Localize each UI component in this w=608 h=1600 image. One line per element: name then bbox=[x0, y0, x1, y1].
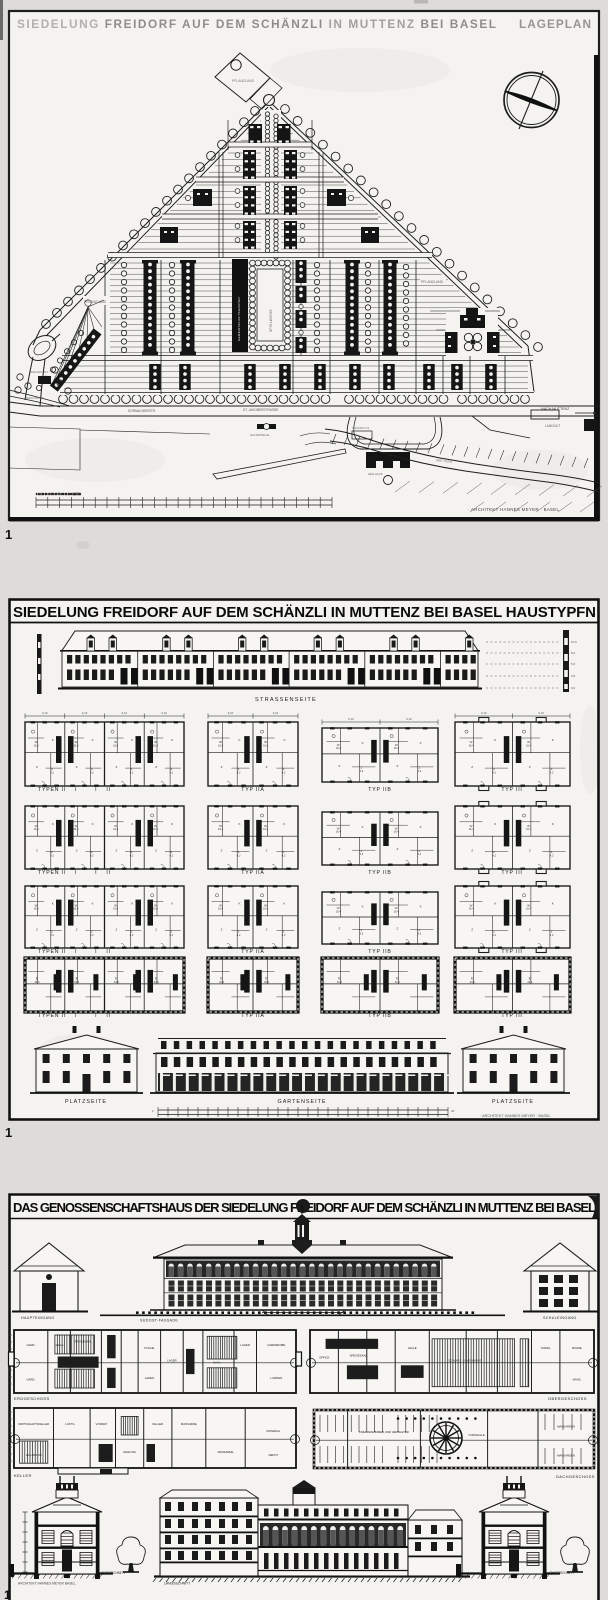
svg-text:K: K bbox=[283, 902, 285, 906]
svg-text:Z: Z bbox=[471, 848, 473, 852]
svg-text:K: K bbox=[362, 741, 364, 745]
svg-text:TYP IIB: TYP IIB bbox=[368, 1013, 391, 1019]
svg-text:Z: Z bbox=[155, 848, 157, 852]
svg-text:0 10 20 30: 0 10 20 30 40 50 60 70 80 90 100 METER bbox=[36, 493, 81, 496]
svg-text:43,6: 43,6 bbox=[395, 980, 401, 984]
svg-text:ARCHITEKT HANNES MEYER BASE: ARCHITEKT HANNES MEYER BASEL. bbox=[18, 1582, 76, 1586]
svg-text:6,10: 6,10 bbox=[481, 711, 487, 715]
svg-text:GARD.: GARD. bbox=[26, 1343, 35, 1347]
svg-text:0,0: 0,0 bbox=[571, 686, 576, 690]
svg-text:STRASSENSEITE: STRASSENSEITE bbox=[255, 697, 317, 703]
svg-text:Z: Z bbox=[266, 765, 268, 769]
svg-text:16,4: 16,4 bbox=[73, 827, 79, 831]
svg-text:Z: Z bbox=[266, 848, 268, 852]
svg-text:K: K bbox=[131, 902, 133, 906]
svg-text:K: K bbox=[420, 741, 422, 745]
svg-text:4,2: 4,2 bbox=[550, 854, 554, 858]
svg-text:16,4: 16,4 bbox=[394, 909, 400, 913]
svg-text:NACH BASEL: NACH BASEL bbox=[26, 396, 45, 400]
svg-text:16,4: 16,4 bbox=[218, 827, 224, 831]
svg-text:Z: Z bbox=[76, 928, 78, 932]
svg-text:4,2: 4,2 bbox=[418, 852, 422, 856]
svg-text:Z: Z bbox=[396, 764, 398, 768]
svg-text:TYP IIB: TYP IIB bbox=[368, 787, 391, 793]
svg-text:Z: Z bbox=[238, 930, 240, 934]
svg-text:MANSARDE: MANSARDE bbox=[218, 1450, 234, 1454]
svg-text:GEMEINSCHAFTSGARTEN: GEMEINSCHAFTSGARTEN bbox=[237, 297, 241, 341]
svg-text:16,4: 16,4 bbox=[73, 743, 79, 747]
svg-text:LÜFTG.: LÜFTG. bbox=[65, 1422, 75, 1426]
svg-text:16,4: 16,4 bbox=[526, 743, 532, 747]
svg-text:SÜDOST-FASSADE: SÜDOST-FASSADE bbox=[140, 1319, 178, 1323]
svg-text:GEN.HAUS: GEN.HAUS bbox=[368, 472, 383, 476]
svg-text:TYP IIB: TYP IIB bbox=[368, 949, 391, 955]
svg-text:Z: Z bbox=[283, 767, 285, 771]
svg-text:4,2: 4,2 bbox=[169, 770, 173, 774]
svg-text:K: K bbox=[131, 822, 133, 826]
svg-text:Z: Z bbox=[418, 766, 420, 770]
svg-text:K: K bbox=[552, 822, 554, 826]
svg-text:Z: Z bbox=[471, 765, 473, 769]
svg-text:SIEDELUNG FREIDORF AUF DEM SCH: SIEDELUNG FREIDORF AUF DEM SCHÄNZLI IN M… bbox=[17, 17, 496, 31]
svg-text:K: K bbox=[92, 902, 94, 906]
svg-text:TYP III: TYP III bbox=[501, 870, 522, 876]
svg-text:16,4: 16,4 bbox=[394, 746, 400, 750]
svg-text:4,2: 4,2 bbox=[360, 852, 364, 856]
svg-text:Z: Z bbox=[551, 930, 553, 934]
svg-text:Z: Z bbox=[91, 850, 93, 854]
svg-text:4,2: 4,2 bbox=[492, 770, 496, 774]
svg-text:Z: Z bbox=[493, 850, 495, 854]
svg-text:SPEISESAAL: SPEISESAAL bbox=[350, 1354, 368, 1358]
svg-text:Z: Z bbox=[338, 764, 340, 768]
svg-text:30: 30 bbox=[451, 1109, 455, 1113]
svg-text:4,2: 4,2 bbox=[50, 770, 54, 774]
svg-text:PFLANZLAND: PFLANZLAND bbox=[421, 280, 444, 284]
svg-text:TYPEN II I I II: TYPEN II I I II bbox=[38, 1013, 111, 1019]
svg-text:16,4: 16,4 bbox=[394, 830, 400, 834]
svg-text:Z: Z bbox=[396, 847, 398, 851]
svg-text:Z: Z bbox=[76, 848, 78, 852]
svg-text:4,2: 4,2 bbox=[492, 933, 496, 937]
svg-text:16,4: 16,4 bbox=[218, 743, 224, 747]
svg-text:4,2: 4,2 bbox=[492, 854, 496, 858]
svg-text:43,6: 43,6 bbox=[219, 980, 225, 984]
svg-text:43,6: 43,6 bbox=[34, 980, 40, 984]
svg-text:K: K bbox=[131, 738, 133, 742]
svg-text:K: K bbox=[420, 905, 422, 909]
svg-text:SPEISESAAL: SPEISESAAL bbox=[74, 1340, 92, 1344]
svg-text:K: K bbox=[171, 902, 173, 906]
svg-text:43,6: 43,6 bbox=[470, 980, 476, 984]
svg-text:Z: Z bbox=[221, 848, 223, 852]
svg-text:5,6: 5,6 bbox=[571, 662, 576, 666]
svg-text:Z: Z bbox=[76, 765, 78, 769]
svg-text:HEIZUNG: HEIZUNG bbox=[123, 1450, 136, 1454]
svg-text:SCHULEINGANG: SCHULEINGANG bbox=[543, 1316, 577, 1320]
svg-text:TURNHALLE: TURNHALLE bbox=[468, 1433, 485, 1437]
svg-text:OBERGESCHOSS: OBERGESCHOSS bbox=[548, 1396, 587, 1401]
svg-text:Z: Z bbox=[155, 765, 157, 769]
svg-text:Z: Z bbox=[115, 848, 117, 852]
svg-text:Z: Z bbox=[396, 926, 398, 930]
svg-text:K: K bbox=[362, 905, 364, 909]
svg-text:43,6: 43,6 bbox=[527, 980, 533, 984]
svg-text:SIEDELUNG FREIDORF AUF DEM: SIEDELUNG FREIDORF AUF DEM SCHÄNZLI IN M… bbox=[13, 604, 596, 621]
svg-text:16,4: 16,4 bbox=[263, 907, 269, 911]
svg-text:VORRAT: VORRAT bbox=[96, 1422, 108, 1426]
svg-text:43,6: 43,6 bbox=[74, 980, 80, 984]
svg-text:4,2: 4,2 bbox=[130, 933, 134, 937]
svg-text:K: K bbox=[494, 822, 496, 826]
svg-text:1: 1 bbox=[4, 1588, 11, 1600]
svg-text:Z: Z bbox=[221, 928, 223, 932]
svg-text:4,2: 4,2 bbox=[90, 933, 94, 937]
svg-text:6,10: 6,10 bbox=[228, 711, 234, 715]
svg-text:Z: Z bbox=[283, 850, 285, 854]
svg-text:4,2: 4,2 bbox=[418, 769, 422, 773]
svg-text:Z: Z bbox=[51, 930, 53, 934]
svg-text:4,2: 4,2 bbox=[237, 770, 241, 774]
svg-text:1: 1 bbox=[5, 527, 12, 542]
svg-text:GARD.: GARD. bbox=[26, 1377, 35, 1381]
svg-text:4,2: 4,2 bbox=[550, 770, 554, 774]
svg-text:Z: Z bbox=[91, 767, 93, 771]
svg-text:K: K bbox=[494, 902, 496, 906]
svg-text:· ARCHITEKT HANNES MEYER · BA: · ARCHITEKT HANNES MEYER · BASEL bbox=[480, 1114, 551, 1118]
svg-text:4,2: 4,2 bbox=[50, 854, 54, 858]
svg-text:TYP III: TYP III bbox=[501, 787, 522, 793]
svg-text:MANS.: MANS. bbox=[573, 1377, 582, 1381]
svg-text:Z: Z bbox=[115, 765, 117, 769]
svg-text:TYPEN II I I II: TYPEN II I I II bbox=[38, 787, 111, 793]
svg-text:16,4: 16,4 bbox=[263, 743, 269, 747]
svg-text:OFFICE: OFFICE bbox=[319, 1355, 329, 1359]
svg-text:PLATZSEITE: PLATZSEITE bbox=[65, 1099, 107, 1105]
svg-text:10,5: 10,5 bbox=[571, 640, 577, 644]
svg-text:Z: Z bbox=[551, 850, 553, 854]
svg-text:TYP IIA: TYP IIA bbox=[241, 870, 264, 876]
svg-text:16,4: 16,4 bbox=[526, 907, 532, 911]
svg-text:1: 1 bbox=[5, 1125, 12, 1140]
svg-text:Z: Z bbox=[131, 850, 133, 854]
svg-text:HALTESTELLE: HALTESTELLE bbox=[250, 433, 269, 437]
svg-text:TURNH.: TURNH. bbox=[540, 1346, 551, 1350]
svg-text:16,4: 16,4 bbox=[469, 827, 475, 831]
svg-text:Z: Z bbox=[238, 850, 240, 854]
svg-text:TYPEN II I I II: TYPEN II I I II bbox=[38, 870, 111, 876]
svg-text:K: K bbox=[362, 825, 364, 829]
svg-text:4,2: 4,2 bbox=[282, 770, 286, 774]
svg-text:MANSARDE: MANSARDE bbox=[181, 1422, 197, 1426]
svg-text:Z: Z bbox=[170, 767, 172, 771]
svg-text:PFLANZLAND: PFLANZLAND bbox=[232, 79, 255, 83]
svg-text:SCHLAFZ. U. WOHNUNG: SCHLAFZ. U. WOHNUNG bbox=[448, 1359, 481, 1363]
svg-text:K: K bbox=[552, 738, 554, 742]
svg-text:TYP IIA: TYP IIA bbox=[241, 949, 264, 955]
svg-text:HOLZRAUM: HOLZRAUM bbox=[26, 1453, 42, 1457]
svg-text:TYPEN II I I II: TYPEN II I I II bbox=[38, 949, 111, 955]
svg-text:Z: Z bbox=[51, 850, 53, 854]
svg-text:4,2: 4,2 bbox=[130, 854, 134, 858]
svg-text:Z: Z bbox=[529, 848, 531, 852]
svg-text:Z: Z bbox=[493, 930, 495, 934]
svg-text:16,4: 16,4 bbox=[218, 907, 224, 911]
svg-text:6,10: 6,10 bbox=[273, 711, 279, 715]
svg-text:HAUPTEINGANG: HAUPTEINGANG bbox=[21, 1316, 55, 1320]
svg-text:Z: Z bbox=[36, 848, 38, 852]
svg-text:TYP III: TYP III bbox=[501, 1013, 522, 1019]
svg-text:16,4: 16,4 bbox=[113, 907, 119, 911]
svg-text:4,2: 4,2 bbox=[169, 933, 173, 937]
svg-text:BAD ANSTALT: BAD ANSTALT bbox=[30, 370, 49, 374]
svg-text:16,4: 16,4 bbox=[336, 746, 342, 750]
svg-text:4,2: 4,2 bbox=[237, 854, 241, 858]
svg-text:K: K bbox=[92, 822, 94, 826]
svg-text:4,2: 4,2 bbox=[237, 933, 241, 937]
svg-text:Z: Z bbox=[493, 767, 495, 771]
svg-text:TYP IIA: TYP IIA bbox=[241, 787, 264, 793]
svg-text:8,2: 8,2 bbox=[571, 651, 576, 655]
svg-text:Z: Z bbox=[36, 765, 38, 769]
svg-text:TYP III: TYP III bbox=[501, 949, 522, 955]
svg-text:SPIELWIESE: SPIELWIESE bbox=[269, 309, 273, 332]
svg-text:Z: Z bbox=[51, 767, 53, 771]
svg-text:Z: Z bbox=[360, 928, 362, 932]
svg-text:16,4: 16,4 bbox=[153, 907, 159, 911]
svg-text:K: K bbox=[52, 822, 54, 826]
svg-text:16,4: 16,4 bbox=[526, 827, 532, 831]
svg-text:LAGER: LAGER bbox=[240, 1343, 249, 1347]
svg-text:Z: Z bbox=[529, 928, 531, 932]
svg-text:43,6: 43,6 bbox=[337, 980, 343, 984]
svg-text:Z: Z bbox=[338, 847, 340, 851]
svg-text:K: K bbox=[494, 738, 496, 742]
svg-text:LAGER: LAGER bbox=[167, 1359, 176, 1363]
svg-text:Z: Z bbox=[91, 930, 93, 934]
svg-text:6,10: 6,10 bbox=[406, 717, 412, 721]
svg-text:ERDGESCHOSS: ERDGESCHOSS bbox=[14, 1396, 50, 1401]
svg-text:· ARCHITEKT HANNES MEYER · BAS: · ARCHITEKT HANNES MEYER · BASEL · bbox=[468, 507, 562, 512]
svg-text:Z: Z bbox=[551, 767, 553, 771]
svg-text:16,4: 16,4 bbox=[153, 827, 159, 831]
svg-text:GARTENSEITE: GARTENSEITE bbox=[278, 1099, 327, 1105]
svg-text:HALLE: HALLE bbox=[408, 1346, 417, 1350]
svg-text:Z: Z bbox=[221, 765, 223, 769]
svg-text:K: K bbox=[238, 738, 240, 742]
svg-text:4,2: 4,2 bbox=[360, 769, 364, 773]
svg-text:MATERIAL: MATERIAL bbox=[267, 1429, 281, 1433]
svg-text:PLATZSEITE: PLATZSEITE bbox=[492, 1099, 534, 1105]
svg-text:Z: Z bbox=[131, 767, 133, 771]
svg-text:Z: Z bbox=[36, 928, 38, 932]
svg-text:6,10: 6,10 bbox=[122, 711, 128, 715]
svg-text:DEPOT: DEPOT bbox=[269, 1453, 279, 1457]
svg-text:KELLER: KELLER bbox=[152, 1422, 163, 1426]
svg-text:16,4: 16,4 bbox=[73, 907, 79, 911]
svg-text:4,2: 4,2 bbox=[130, 770, 134, 774]
svg-text:Z: Z bbox=[238, 767, 240, 771]
svg-text:Z: Z bbox=[266, 928, 268, 932]
svg-text:K: K bbox=[52, 738, 54, 742]
svg-text:Z: Z bbox=[131, 930, 133, 934]
svg-text:K: K bbox=[171, 822, 173, 826]
svg-text:6,10: 6,10 bbox=[348, 717, 354, 721]
svg-text:ST. JAKOBERSTRASSE: ST. JAKOBERSTRASSE bbox=[243, 408, 278, 412]
svg-text:TENNISPLATZ: TENNISPLATZ bbox=[352, 426, 370, 430]
svg-text:BÜHNE: BÜHNE bbox=[572, 1346, 582, 1350]
svg-text:16,4: 16,4 bbox=[34, 827, 40, 831]
svg-text:43,6: 43,6 bbox=[264, 980, 270, 984]
svg-text:Z: Z bbox=[170, 930, 172, 934]
svg-text:LAGEPLAN: LAGEPLAN bbox=[519, 17, 591, 31]
svg-text:DACHGESCHOSS: DACHGESCHOSS bbox=[556, 1474, 595, 1479]
svg-text:LUMPEN: LUMPEN bbox=[270, 1376, 282, 1380]
svg-text:Z: Z bbox=[360, 766, 362, 770]
svg-text:4,2: 4,2 bbox=[90, 854, 94, 858]
svg-text:KELLER: KELLER bbox=[14, 1473, 32, 1478]
svg-text:DORNACHERSTR.: DORNACHERSTR. bbox=[128, 409, 156, 413]
svg-text:43,6: 43,6 bbox=[114, 980, 120, 984]
svg-text:2,8: 2,8 bbox=[571, 674, 576, 678]
svg-text:Z: Z bbox=[338, 926, 340, 930]
svg-text:16,4: 16,4 bbox=[34, 743, 40, 747]
svg-text:GARDEROBE: GARDEROBE bbox=[267, 1343, 285, 1347]
svg-text:K: K bbox=[52, 902, 54, 906]
svg-text:Z: Z bbox=[155, 928, 157, 932]
svg-text:KÜCHE: KÜCHE bbox=[145, 1346, 155, 1350]
svg-text:K: K bbox=[171, 738, 173, 742]
svg-text:LÄNGSSCHNITT: LÄNGSSCHNITT bbox=[164, 1582, 190, 1586]
svg-text:LADEN: LADEN bbox=[145, 1376, 154, 1380]
svg-text:TYP IIB: TYP IIB bbox=[368, 870, 391, 876]
svg-text:6,10: 6,10 bbox=[82, 711, 88, 715]
svg-text:Z: Z bbox=[418, 928, 420, 932]
svg-text:16,4: 16,4 bbox=[336, 830, 342, 834]
svg-text:16,4: 16,4 bbox=[263, 827, 269, 831]
svg-text:4,2: 4,2 bbox=[282, 933, 286, 937]
svg-text:4,2: 4,2 bbox=[550, 933, 554, 937]
svg-text:16,4: 16,4 bbox=[113, 827, 119, 831]
svg-text:K: K bbox=[92, 738, 94, 742]
svg-text:4,2: 4,2 bbox=[169, 854, 173, 858]
svg-text:Z: Z bbox=[115, 928, 117, 932]
svg-text:4,2: 4,2 bbox=[418, 931, 422, 935]
svg-text:QUERSCHNITT: QUERSCHNITT bbox=[101, 1571, 126, 1575]
svg-text:4,2: 4,2 bbox=[360, 931, 364, 935]
svg-text:HALLE: HALLE bbox=[55, 1343, 64, 1347]
svg-text:6,10: 6,10 bbox=[161, 711, 167, 715]
svg-text:16,4: 16,4 bbox=[153, 743, 159, 747]
svg-text:6,10: 6,10 bbox=[538, 711, 544, 715]
svg-text:Z: Z bbox=[170, 850, 172, 854]
svg-text:16,4: 16,4 bbox=[469, 907, 475, 911]
svg-text:K: K bbox=[283, 822, 285, 826]
svg-text:TYP IIA: TYP IIA bbox=[241, 1013, 264, 1019]
svg-text:6,10: 6,10 bbox=[42, 711, 48, 715]
svg-text:WIRTSCHAFTSKELLER: WIRTSCHAFTSKELLER bbox=[18, 1422, 49, 1426]
svg-text:4,2: 4,2 bbox=[90, 770, 94, 774]
svg-text:43,6: 43,6 bbox=[154, 980, 160, 984]
svg-text:K: K bbox=[552, 902, 554, 906]
svg-text:Z: Z bbox=[471, 928, 473, 932]
svg-text:4,2: 4,2 bbox=[282, 854, 286, 858]
svg-text:K: K bbox=[283, 738, 285, 742]
svg-text:16,4: 16,4 bbox=[113, 743, 119, 747]
svg-text:16,4: 16,4 bbox=[336, 909, 342, 913]
svg-text:SAAL: SAAL bbox=[213, 1360, 221, 1364]
svg-text:Z: Z bbox=[283, 930, 285, 934]
svg-text:K: K bbox=[238, 902, 240, 906]
svg-text:LANDGUT: LANDGUT bbox=[545, 424, 560, 428]
svg-text:K: K bbox=[238, 822, 240, 826]
svg-text:K: K bbox=[420, 825, 422, 829]
svg-text:Z: Z bbox=[529, 765, 531, 769]
svg-text:16,4: 16,4 bbox=[469, 743, 475, 747]
svg-text:4,2: 4,2 bbox=[50, 933, 54, 937]
svg-text:16,4: 16,4 bbox=[34, 907, 40, 911]
